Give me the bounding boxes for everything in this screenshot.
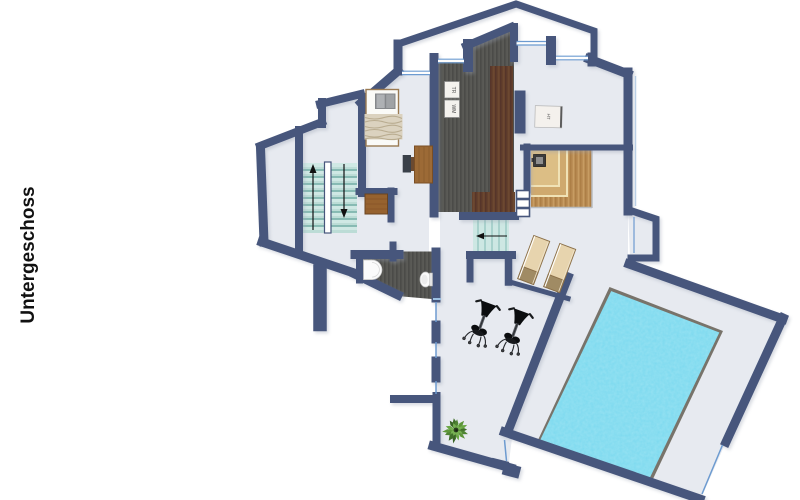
svg-text:HT: HT	[546, 113, 551, 119]
svg-text:TR: TR	[450, 87, 456, 94]
svg-text:WM: WM	[450, 105, 456, 114]
